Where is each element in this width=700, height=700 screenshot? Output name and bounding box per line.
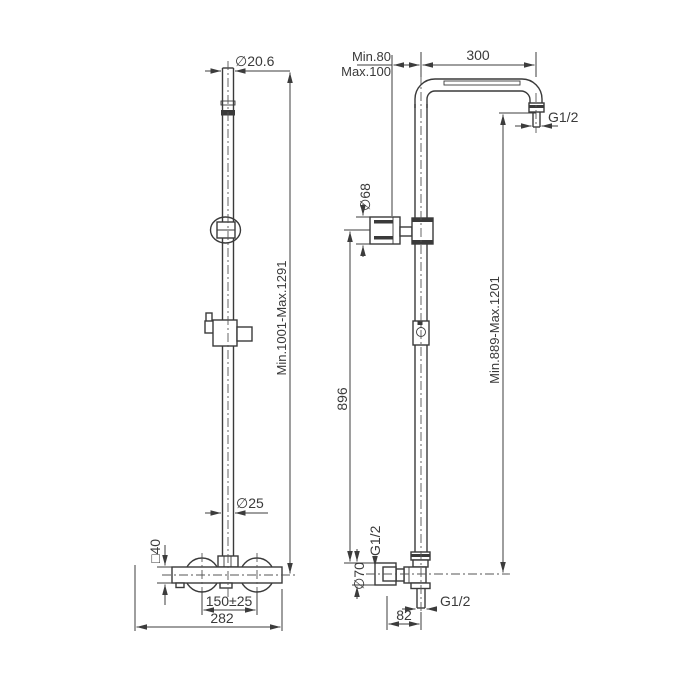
front-slider-holder [205,313,252,346]
dim-flange-diameter: ∅70 [351,562,367,590]
technical-drawing-page: ∅20.6 Min.1001-Max.1291 ∅25 □40 150±25 [0,0,700,700]
front-mixer-valve [172,556,282,592]
side-dimensions: Min.80 Max.100 300 G1/2 Min.889-Max.1201… [334,47,579,630]
dim-inlet-spacing: 150±25 [206,593,253,609]
dim-outlet-offset: 82 [396,607,412,623]
dim-wall-distance-max: Max.100 [341,64,391,79]
dim-overall-width: 282 [210,610,234,626]
side-shower-arm [415,79,544,127]
dim-arm-reach: 300 [466,47,490,63]
dim-head-height-range: Min.889-Max.1201 [487,276,502,384]
side-wall-bracket [370,217,433,244]
dim-wall-distance-min: Min.80 [352,49,391,64]
dim-pipe-diameter: ∅25 [236,495,264,511]
dim-head-diameter: ∅20.6 [235,53,275,69]
dim-bracket-diameter: ∅68 [357,183,373,211]
front-wall-bracket [211,217,241,243]
dim-body-size: □40 [147,539,163,563]
dim-rail-length: 896 [334,387,350,411]
side-view: Min.80 Max.100 300 G1/2 Min.889-Max.1201… [334,47,579,630]
shower-column-dimension-drawing: ∅20.6 Min.1001-Max.1291 ∅25 □40 150±25 [0,0,700,700]
dim-arm-thread: G1/2 [548,109,579,125]
front-view: ∅20.6 Min.1001-Max.1291 ∅25 □40 150±25 [135,53,296,631]
dim-height-range: Min.1001-Max.1291 [274,261,289,376]
dim-inlet-thread: G1/2 [367,525,383,556]
side-mixer-valve [375,552,430,608]
dim-outlet-thread: G1/2 [440,593,471,609]
